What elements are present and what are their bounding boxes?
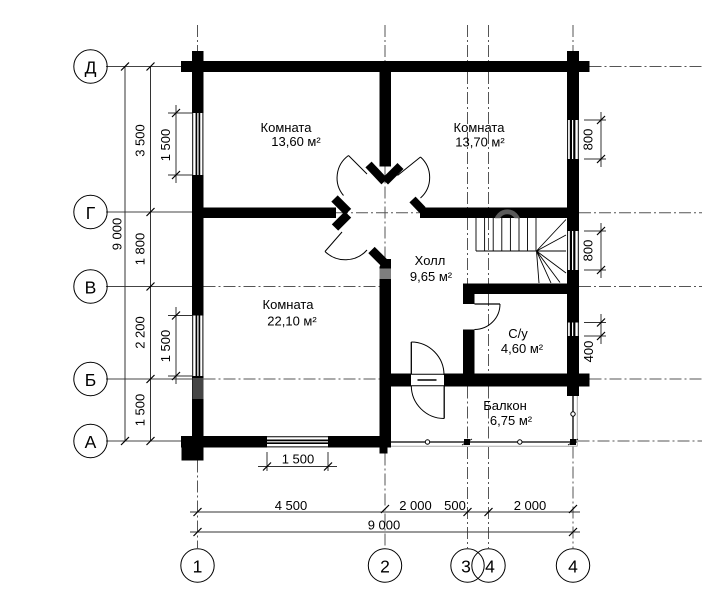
svg-text:1 800: 1 800: [133, 233, 148, 266]
svg-text:А: А: [85, 432, 97, 452]
svg-text:9 000: 9 000: [368, 518, 401, 533]
svg-text:2 000: 2 000: [399, 498, 432, 513]
svg-text:1 500: 1 500: [158, 330, 173, 363]
svg-text:1: 1: [193, 557, 203, 577]
svg-text:1 500: 1 500: [158, 129, 173, 162]
svg-text:4 500: 4 500: [275, 498, 308, 513]
svg-text:500: 500: [444, 498, 466, 513]
svg-text:1 500: 1 500: [133, 394, 148, 427]
svg-text:400: 400: [581, 341, 596, 363]
svg-text:6,75 м²: 6,75 м²: [490, 413, 533, 428]
svg-text:2: 2: [380, 557, 390, 577]
svg-text:9 000: 9 000: [110, 218, 125, 251]
svg-text:800: 800: [581, 129, 596, 151]
svg-text:С/у: С/у: [508, 326, 528, 341]
svg-text:4: 4: [485, 557, 495, 577]
svg-text:1 500: 1 500: [282, 452, 315, 467]
svg-text:13,70 м²: 13,70 м²: [455, 135, 505, 150]
svg-text:Комната: Комната: [263, 297, 315, 312]
svg-text:22,10 м²: 22,10 м²: [267, 314, 317, 329]
svg-text:13,60 м²: 13,60 м²: [271, 134, 321, 149]
svg-text:Холл: Холл: [415, 253, 446, 268]
svg-text:В: В: [85, 278, 97, 298]
svg-text:Д: Д: [85, 58, 97, 78]
svg-text:3 500: 3 500: [133, 124, 148, 157]
svg-text:Балкон: Балкон: [483, 398, 527, 413]
svg-text:4,60 м²: 4,60 м²: [501, 341, 544, 356]
svg-text:3: 3: [461, 557, 471, 577]
svg-text:9,65 м²: 9,65 м²: [410, 269, 453, 284]
svg-text:Г: Г: [86, 203, 96, 223]
svg-text:Б: Б: [85, 370, 96, 390]
svg-text:Комната: Комната: [454, 120, 506, 135]
svg-text:4: 4: [568, 557, 578, 577]
svg-text:2 000: 2 000: [514, 498, 547, 513]
svg-text:2 200: 2 200: [133, 316, 148, 349]
svg-text:Комната: Комната: [261, 120, 313, 135]
svg-text:800: 800: [581, 240, 596, 262]
